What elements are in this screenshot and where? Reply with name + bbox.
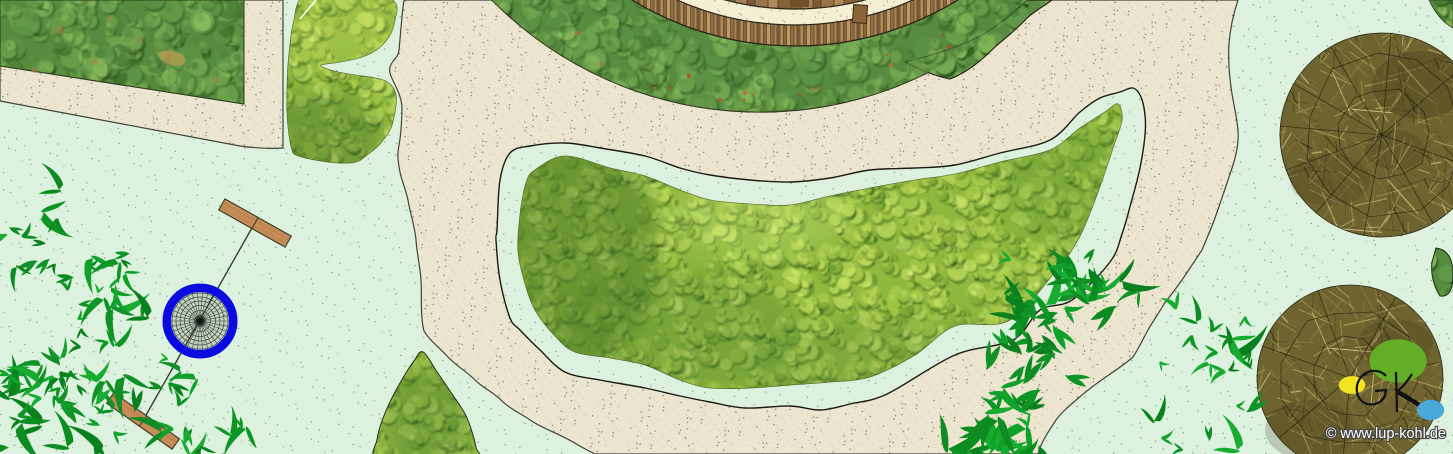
svg-text:© www.lup-kohl.de: © www.lup-kohl.de bbox=[1326, 426, 1446, 442]
